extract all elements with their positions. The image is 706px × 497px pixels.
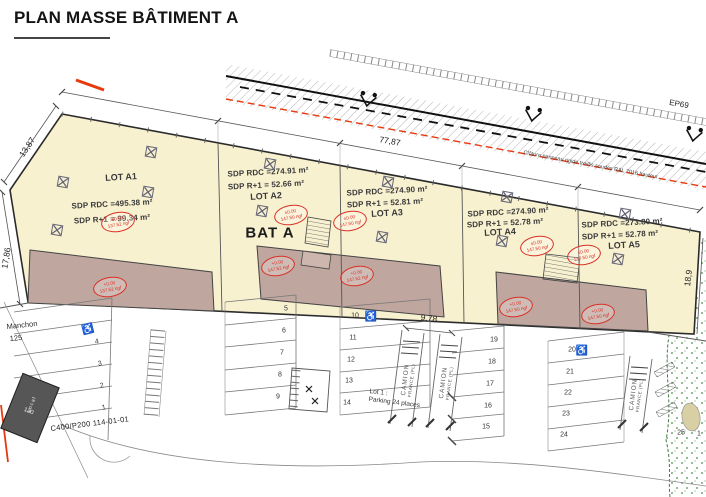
dim-right: 18,9 — [682, 269, 694, 287]
wheelchair-icon: ♿ — [576, 346, 588, 357]
roof-hatch-icon — [376, 231, 389, 244]
parking-spot-number: 22 — [564, 390, 572, 397]
parking-spot-number: 13 — [345, 378, 353, 385]
lot-a5-label: LOT A5 — [608, 239, 640, 251]
street-edge — [226, 76, 706, 164]
truck-strip — [390, 330, 652, 433]
title-underline — [14, 37, 110, 39]
parking-spot-number: 8 — [278, 372, 282, 379]
lot-a3-label: LOT A3 — [371, 207, 403, 219]
parking-spot-number: 12 — [347, 357, 355, 364]
parking-spot-number: 14 — [343, 400, 351, 407]
parking-spot-number: 11 — [349, 335, 356, 342]
roof-hatch-icon — [619, 208, 632, 221]
parking-spot-number: 21 — [566, 369, 574, 376]
manchon-number: 125 — [9, 333, 22, 343]
roof-hatch-icon — [496, 235, 509, 248]
parking-spot-number: 23 — [562, 411, 570, 418]
building-name: BAT A — [245, 225, 294, 242]
roof-hatch-icon — [142, 186, 155, 199]
parking-spot-number: 16 — [484, 403, 492, 410]
roof-hatch-icon — [145, 146, 158, 159]
roof-hatch-icon — [256, 205, 269, 218]
roof-hatch-icon — [57, 176, 70, 189]
parking-spot-number: 15 — [482, 424, 490, 431]
parking-spot-number: 1 — [697, 431, 701, 438]
lot-a2-label: LOT A2 — [250, 190, 282, 202]
wheelchair-icon: ♿ — [365, 312, 377, 323]
roof-hatch-icon — [382, 176, 395, 189]
dim-aisle: 9,78 — [420, 312, 438, 324]
parking-spot-number: 25 — [677, 430, 685, 437]
parking-spot-number: 24 — [560, 432, 568, 439]
roof-hatch-icon — [264, 158, 277, 171]
parking-spot-number: 5 — [284, 306, 288, 313]
page-title: PLAN MASSE BÂTIMENT A — [14, 8, 239, 28]
parking-spot-number: 7 — [280, 350, 284, 357]
parking-spot-number: 19 — [490, 337, 498, 344]
pole-icon — [685, 125, 704, 142]
roof-hatch-icon — [501, 191, 514, 204]
stairs — [305, 217, 331, 247]
lot-a1-label: LOT A1 — [105, 171, 137, 183]
site-plan: PLAN MASSE BÂTIMENT A LOT A1 SDP RDC =49… — [0, 0, 706, 497]
parking-spot-number: 18 — [488, 359, 496, 366]
parking-spot-number: 9 — [276, 394, 280, 401]
parking-spot-number: 20 — [568, 347, 576, 354]
roof-hatch-icon — [612, 253, 625, 266]
roof-hatch-icon — [51, 224, 64, 237]
red-segment — [76, 80, 104, 90]
parking-spot-number: 6 — [282, 328, 286, 335]
parking-spot-number: 10 — [351, 313, 359, 320]
parking-spot-number: 17 — [486, 381, 494, 388]
